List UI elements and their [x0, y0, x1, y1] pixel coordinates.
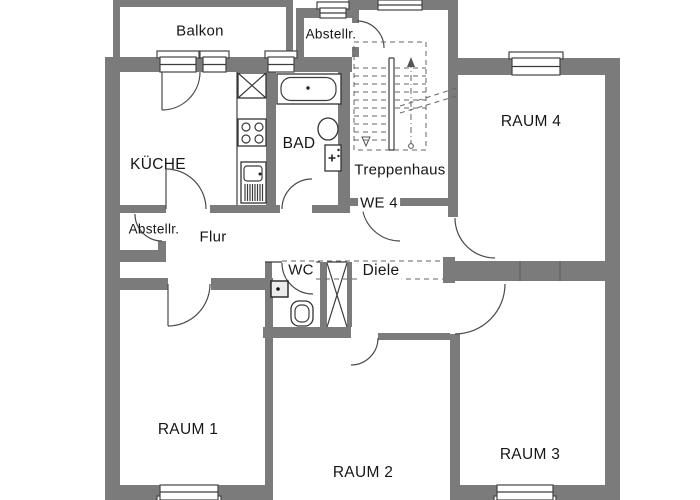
floor-plan: Balkon Abstellr. KÜCHE BAD Treppenhaus R… — [0, 0, 700, 500]
balcony-door-window — [157, 51, 199, 72]
room-label-flur: Flur — [199, 229, 226, 246]
wc-basin-icon — [271, 281, 288, 297]
kitchen-counter — [237, 72, 266, 205]
stove-icon — [238, 119, 266, 146]
raum1-door-swing — [168, 284, 210, 326]
room-label-kueche: KÜCHE — [130, 156, 186, 174]
room-label-raum2: RAUM 2 — [333, 464, 393, 482]
kitchen-sink-icon — [241, 162, 266, 203]
room-label-abstellraum-top: Abstellr. — [306, 27, 357, 42]
room-label-bad: BAD — [283, 135, 316, 153]
storage-top-door-swing — [357, 21, 384, 48]
cabinet-icon — [238, 73, 266, 98]
kitchen-door-swing — [166, 169, 206, 209]
kitchen-window-2 — [265, 51, 297, 72]
room-label-diele: Diele — [361, 262, 402, 280]
kitchen-window — [200, 51, 229, 72]
room-label-balkon: Balkon — [176, 23, 224, 40]
vanity-icon — [325, 145, 341, 171]
room-label-abstellraum-lower: Abstellr. — [129, 222, 180, 237]
wc-fixtures — [271, 281, 313, 326]
raum4-door-swing — [455, 218, 495, 258]
bath-fixtures — [277, 74, 341, 171]
room-label-raum1: RAUM 1 — [158, 421, 218, 439]
storage-top-window — [317, 2, 349, 18]
staircase — [354, 42, 460, 150]
stair-up-arrow — [407, 57, 415, 67]
raum4-window — [509, 52, 563, 75]
room-label-raum3: RAUM 3 — [500, 446, 560, 464]
bathtub-icon — [277, 74, 341, 104]
raum2-door-swing — [351, 338, 378, 365]
room-label-treppenhaus: Treppenhaus — [354, 162, 445, 179]
toilet-icon — [291, 301, 313, 326]
raum3-window — [494, 485, 556, 500]
room-label-raum4: RAUM 4 — [501, 113, 561, 131]
room-label-wc: WC — [286, 262, 316, 279]
floor-plan-drawing — [0, 0, 700, 500]
raum3-door-swing — [455, 284, 505, 334]
stairwell-window — [378, 0, 422, 10]
washbasin-icon — [318, 118, 338, 140]
balcony-door-swing — [162, 72, 200, 110]
raum1-window — [157, 485, 221, 500]
stair-down-arrow — [362, 137, 370, 146]
bath-door-swing — [282, 179, 312, 209]
unit-label-we4: WE 4 — [358, 195, 400, 212]
